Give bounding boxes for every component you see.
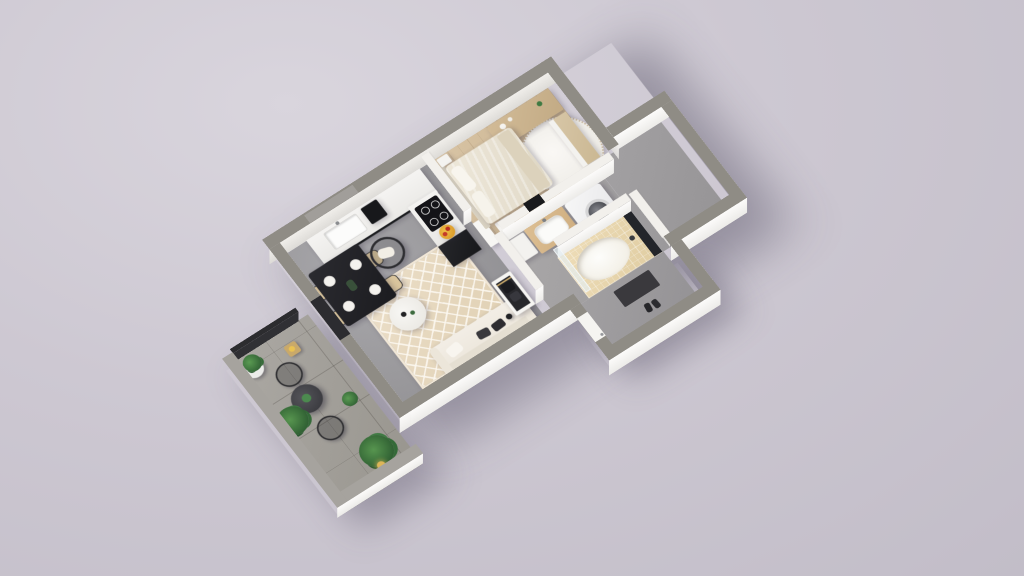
burner-icon (438, 210, 450, 221)
fruit-icon (442, 231, 449, 237)
burner-icon (429, 199, 441, 210)
burner-icon (419, 205, 431, 216)
dresser-decor-icon (507, 116, 514, 122)
burner-icon (428, 216, 440, 227)
dresser-plant-icon (536, 100, 544, 107)
scene-background (0, 0, 1024, 576)
lantern-icon (287, 345, 296, 353)
table-decor-icon (400, 311, 408, 318)
table-plant-icon (300, 392, 313, 404)
table-decor-icon (409, 310, 416, 316)
